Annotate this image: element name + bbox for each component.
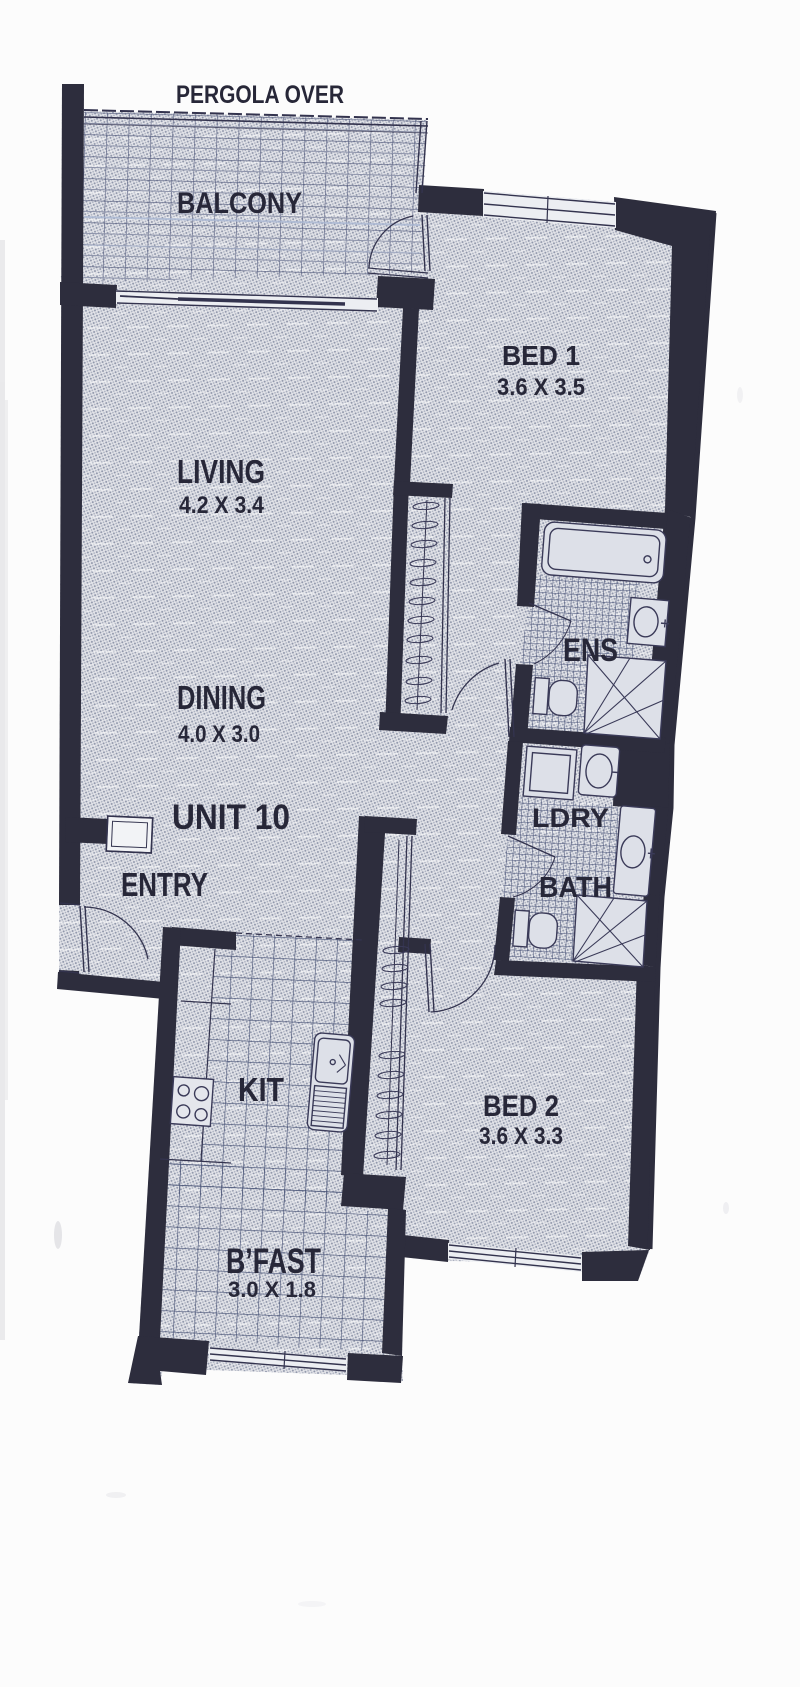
- svg-text:ENS: ENS: [563, 632, 618, 668]
- svg-text:BED 2: BED 2: [483, 1090, 559, 1123]
- svg-text:DINING: DINING: [177, 679, 266, 716]
- svg-text:BED 1: BED 1: [502, 340, 580, 371]
- svg-text:B’FAST: B’FAST: [226, 1242, 321, 1281]
- svg-text:3.6 X 3.3: 3.6 X 3.3: [479, 1123, 563, 1150]
- svg-text:4.0 X 3.0: 4.0 X 3.0: [178, 721, 260, 748]
- svg-text:LDRY: LDRY: [532, 803, 609, 833]
- svg-text:PERGOLA OVER: PERGOLA OVER: [176, 81, 344, 109]
- svg-text:KIT: KIT: [238, 1071, 284, 1108]
- svg-text:UNIT 10: UNIT 10: [172, 798, 290, 837]
- svg-text:BATH: BATH: [539, 872, 612, 904]
- svg-text:4.2 X 3.4: 4.2 X 3.4: [179, 492, 265, 519]
- svg-text:3.0 X 1.8: 3.0 X 1.8: [228, 1277, 316, 1302]
- svg-text:ENTRY: ENTRY: [121, 866, 208, 903]
- svg-text:3.6 X 3.5: 3.6 X 3.5: [497, 374, 585, 401]
- svg-text:BALCONY: BALCONY: [177, 187, 302, 220]
- svg-text:LIVING: LIVING: [177, 453, 265, 490]
